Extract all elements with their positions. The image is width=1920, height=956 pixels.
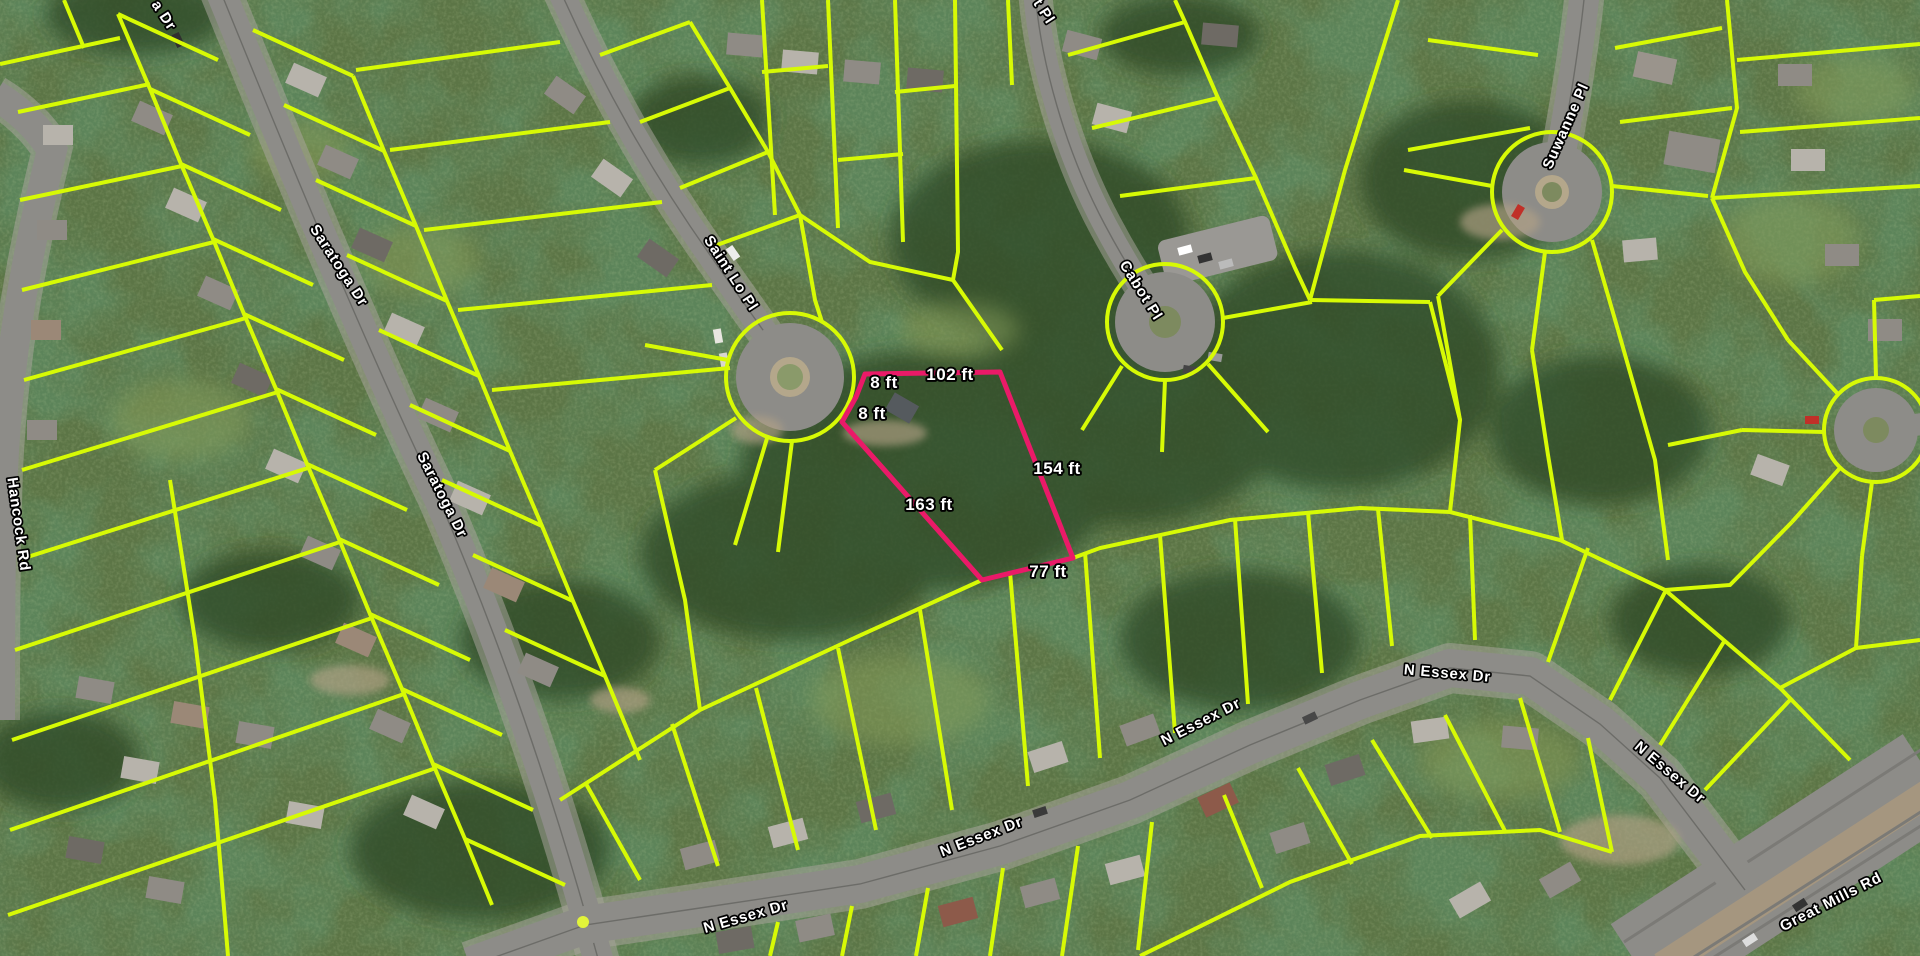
dimension-label-154ft: 154 ft <box>1033 459 1080 478</box>
dimension-label-77ft: 77 ft <box>1029 562 1066 581</box>
dimension-label-8ft-top: 8 ft <box>870 373 898 392</box>
map-svg: a Dr Saratoga Dr Saratoga Dr Hancock Rd … <box>0 0 1920 956</box>
dimension-label-163ft: 163 ft <box>905 495 952 514</box>
dimension-label-102ft: 102 ft <box>926 365 973 384</box>
map-canvas[interactable]: a Dr Saratoga Dr Saratoga Dr Hancock Rd … <box>0 0 1920 956</box>
traffic-signal-icon <box>577 916 589 928</box>
dimension-label-8ft-bottom: 8 ft <box>858 404 886 423</box>
